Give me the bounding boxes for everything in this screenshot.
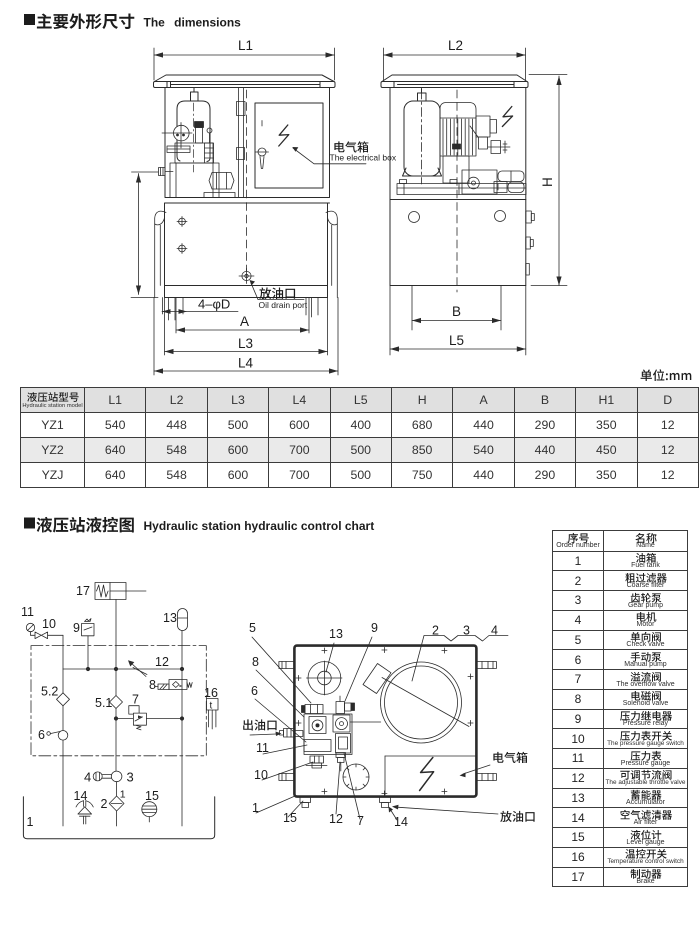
svg-text:6: 6	[38, 728, 45, 742]
svg-text:10: 10	[42, 617, 56, 631]
svg-text:The dimensions: The dimensions	[144, 16, 242, 30]
svg-text:15: 15	[283, 811, 297, 825]
svg-text:4–φD: 4–φD	[198, 297, 230, 312]
svg-text:9: 9	[73, 621, 80, 635]
svg-text:17: 17	[76, 584, 90, 598]
svg-text:L1: L1	[238, 38, 253, 53]
svg-text:Hydraulic station hydraulic co: Hydraulic station hydraulic control char…	[144, 519, 375, 533]
svg-text:14: 14	[74, 789, 88, 803]
svg-text:B: B	[452, 304, 461, 319]
svg-text:3: 3	[463, 624, 470, 638]
svg-text:14: 14	[394, 815, 408, 829]
svg-text:L4: L4	[238, 356, 254, 371]
svg-text:15: 15	[145, 789, 159, 803]
svg-text:11: 11	[21, 605, 34, 619]
svg-text:A: A	[240, 314, 249, 329]
svg-text:7: 7	[357, 814, 364, 828]
svg-text:The electrical box: The electrical box	[330, 153, 397, 163]
svg-text:6: 6	[251, 684, 258, 698]
svg-text:1: 1	[252, 801, 259, 815]
svg-text:1: 1	[120, 789, 126, 801]
svg-text:1: 1	[27, 815, 34, 829]
svg-text:12: 12	[155, 655, 169, 669]
svg-text:16: 16	[204, 686, 218, 700]
svg-text:5.2: 5.2	[41, 685, 58, 699]
svg-text:H: H	[540, 177, 555, 187]
svg-text:L3: L3	[238, 336, 253, 351]
svg-text:9: 9	[371, 621, 378, 635]
svg-text:5: 5	[249, 621, 256, 635]
svg-text:13: 13	[329, 627, 343, 641]
svg-text:13: 13	[163, 611, 177, 625]
svg-text:5.1: 5.1	[95, 696, 112, 710]
svg-text:4: 4	[84, 770, 91, 785]
svg-text:Oil drain port: Oil drain port	[259, 300, 308, 310]
svg-text:7: 7	[132, 693, 139, 707]
svg-text:L2: L2	[448, 38, 463, 53]
svg-text:2: 2	[101, 797, 108, 811]
svg-text:4: 4	[491, 624, 498, 638]
svg-text:L5: L5	[449, 333, 464, 348]
svg-text:10: 10	[254, 768, 268, 782]
svg-text:8: 8	[252, 655, 259, 669]
svg-text:3: 3	[127, 770, 134, 785]
svg-text:8: 8	[149, 678, 156, 692]
